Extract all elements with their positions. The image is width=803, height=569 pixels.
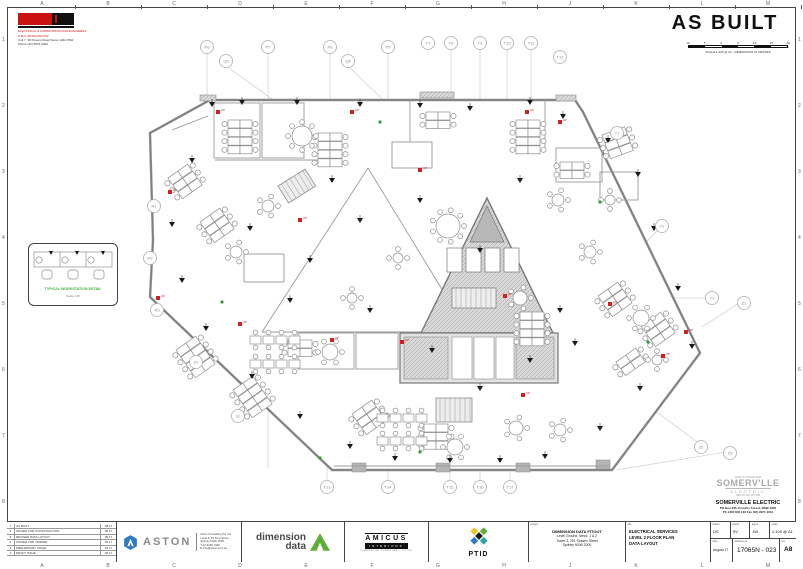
frame-number: 7 (2, 433, 5, 439)
aston-name: ASTON (143, 536, 191, 548)
aston-logo-icon (122, 534, 139, 551)
field-date: date August 17 (711, 539, 733, 562)
rev-label: rev (782, 540, 786, 543)
project-cell: project DIMENSION DATA FITOUT Level Grou… (529, 522, 626, 562)
frame-letter: H (502, 1, 506, 7)
ptid-logo-icon (467, 526, 491, 550)
frame-letter: G (436, 563, 440, 569)
project-line4: Sydney NSW 2000 (529, 543, 625, 548)
field-drawn: drawn DS (711, 522, 731, 538)
frame-number: 5 (2, 301, 5, 307)
frame-letter: M (766, 1, 770, 7)
contractor-abn: ABN 60 000 423 188 (701, 494, 795, 498)
frame-number: 5 (798, 301, 801, 307)
scale-bar: 10505101520 m SCALE 1:100 @ A1 - DIMENSI… (688, 41, 788, 54)
frame-letter: K (634, 1, 637, 7)
frame-number: 3 (2, 169, 5, 175)
contractor-logo-text: SOMERV'LLE (701, 479, 795, 488)
frame-letter: C (172, 563, 176, 569)
detail-scale: Scale 1:25 (29, 294, 117, 298)
logo-black-block (52, 13, 74, 25)
title-label: title (628, 523, 632, 526)
logo-red-block (18, 13, 52, 25)
frame-letter: M (766, 563, 770, 569)
amicus-sub-bar: INTERIORS (365, 543, 407, 549)
frame-letter: C (172, 1, 176, 7)
sheet-frame (7, 7, 796, 562)
frame-number: 8 (798, 499, 801, 505)
aston-cell: ASTON Aston Consulting Pty Ltd Level 5, … (117, 522, 242, 562)
workstation-detail-drawing (29, 244, 117, 286)
contractor-address2: Ph 1300 843 133 Fax (02) 9971 4044 (701, 511, 795, 515)
dd-line2: data (256, 542, 306, 551)
scale-value: 1:100 @ A1 (772, 529, 793, 534)
scale-label: scale (771, 523, 777, 526)
amicus-tagline: COMMERCIAL FURNITURE + FITOUT (360, 550, 413, 552)
project-label: project (531, 523, 539, 526)
aston-address: Aston Consulting Pty Ltd Level 5, 75 Kin… (196, 533, 231, 551)
frame-letter: J (569, 563, 572, 569)
workstation-detail-box: TYPICAL WORKSTATION DETAIL Scale 1:25 (28, 243, 118, 306)
field-scale: scale 1:100 @ A1 (770, 522, 796, 538)
scale-bar-ticks: 10505101520 m (688, 41, 788, 45)
scale-bar-segments (688, 45, 788, 48)
frame-letter: K (634, 563, 637, 569)
approved-label: app'd (752, 523, 758, 526)
field-revision: rev A8 (780, 539, 796, 562)
frame-letter: E (304, 563, 307, 569)
amicus-cell: AMICUS INTERIORS COMMERCIAL FURNITURE + … (345, 522, 429, 562)
date-value: August 17 (713, 548, 728, 552)
scale-tick-label: 5 (704, 41, 706, 45)
scale-caption: SCALE 1:100 @ A1 - DIMENSIONS IN METRES (688, 50, 788, 54)
frame-letter: D (238, 563, 242, 569)
date-label: date (713, 540, 718, 543)
drawn-value: DS (713, 529, 719, 534)
title-block: 7AS BUILT08.176ISSUED FOR CONSTRUCTION06… (7, 521, 796, 562)
approved-value: JW (752, 529, 758, 534)
revision-table: 7AS BUILT08.176ISSUED FOR CONSTRUCTION06… (7, 522, 117, 562)
contractor-block: QUALITY SINCE 1945 SOMERV'LLE ELECTRIC A… (701, 476, 795, 521)
scale-tick-label: 20 m (786, 41, 789, 49)
frame-letter: L (701, 1, 704, 7)
frame-letter: L (701, 563, 704, 569)
dimension-data-logo-icon (310, 533, 330, 551)
field-checked: check SV (731, 522, 751, 538)
consultant-stamp: ELECTRICAL & COMMUNICATIONS ENGINEERS A.… (18, 13, 158, 46)
frame-letter: E (304, 1, 307, 7)
dwg-label: drawing no. (735, 540, 748, 543)
scale-tick-label: 5 (737, 41, 739, 45)
field-approved: app'd JW (750, 522, 770, 538)
frame-number: 7 (798, 433, 801, 439)
aston-addr4: E info@aston.com.au (200, 547, 231, 551)
amicus-wordmark: AMICUS (365, 533, 408, 542)
ptid-wordmark: PTID (469, 551, 489, 558)
frame-letter: B (106, 1, 109, 7)
dimension-data-wordmark: dimension data (256, 533, 306, 551)
stamp-red-line1: ELECTRICAL & COMMUNICATIONS ENGINEERS (18, 29, 158, 33)
stamp-black-line2: Phone (02) 9674 0000 (18, 42, 158, 46)
revision-row: 2DRAFT ISSUE02.17 (7, 551, 116, 556)
frame-number: 6 (2, 367, 5, 373)
consultant-logo (18, 13, 74, 25)
drawing-title-line3: DATA LAYOUT (629, 541, 710, 547)
frame-number: 2 (2, 103, 5, 109)
frame-letter: G (436, 1, 440, 7)
frame-number: 6 (798, 367, 801, 373)
fields-row1: drawn DS check SV app'd JW scale 1:100 @… (711, 522, 796, 539)
field-drawing-number: drawing no. 17065N - 023 (733, 539, 780, 562)
frame-number: 3 (798, 169, 801, 175)
dwg-value: 17065N - 023 (737, 547, 776, 554)
frame-number: 1 (798, 37, 801, 43)
as-built-stamp: AS BUILT (660, 12, 790, 35)
title-cell: title ELECTRICAL SERVICES LEVEL 2 FLOOR … (626, 522, 711, 562)
checked-value: SV (733, 529, 738, 534)
checked-label: check (732, 523, 739, 526)
frame-letter: F (370, 1, 373, 7)
detail-caption: TYPICAL WORKSTATION DETAIL (29, 287, 117, 291)
drawing-sheet: AABBCCDDEEFFGGHHJJKKLLMM1122334455667788… (0, 0, 803, 569)
fields-cell: drawn DS check SV app'd JW scale 1:100 @… (711, 522, 796, 562)
frame-number: 8 (2, 499, 5, 505)
scale-tick-label: 0 (720, 41, 722, 45)
frame-letter: H (502, 563, 506, 569)
logo-underline (18, 26, 74, 28)
drawn-label: drawn (713, 523, 720, 526)
frame-letter: B (106, 563, 109, 569)
scale-tick-label: 15 (770, 41, 773, 45)
ptid-cell: PTID (429, 522, 529, 562)
frame-number: 4 (798, 235, 801, 241)
frame-number: 4 (2, 235, 5, 241)
fields-row2: date August 17 drawing no. 17065N - 023 … (711, 539, 796, 562)
scale-tick-label: 10 (753, 41, 756, 45)
scale-tick-label: 10 (686, 41, 689, 45)
frame-number: 1 (2, 37, 5, 43)
frame-number: 2 (798, 103, 801, 109)
frame-letter: D (238, 1, 242, 7)
frame-letter: A (40, 563, 43, 569)
frame-letter: J (569, 1, 572, 7)
frame-letter: A (40, 1, 43, 7)
dimension-data-cell: dimension data (242, 522, 345, 562)
frame-letter: F (370, 563, 373, 569)
rev-value: A8 (784, 546, 792, 553)
